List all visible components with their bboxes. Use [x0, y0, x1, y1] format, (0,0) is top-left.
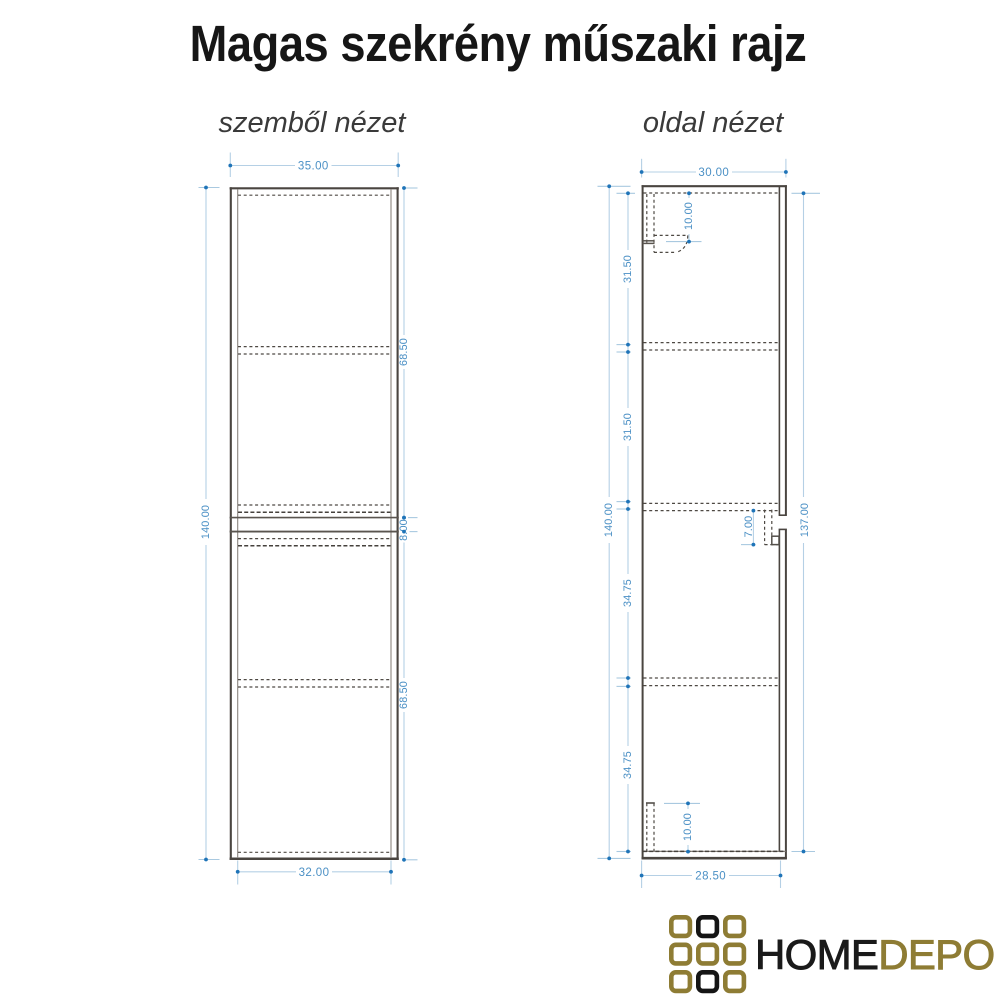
- svg-text:137.00: 137.00: [799, 503, 811, 537]
- svg-text:34.75: 34.75: [622, 751, 634, 779]
- svg-text:10.00: 10.00: [682, 813, 694, 841]
- svg-text:31.50: 31.50: [622, 413, 634, 441]
- svg-text:HOMEDEPO: HOMEDEPO: [755, 931, 994, 978]
- svg-text:32.00: 32.00: [299, 867, 330, 879]
- svg-text:68.50: 68.50: [398, 338, 410, 366]
- svg-text:10.00: 10.00: [683, 202, 695, 230]
- svg-text:31.50: 31.50: [622, 255, 634, 283]
- svg-text:35.00: 35.00: [298, 161, 329, 173]
- svg-text:28.50: 28.50: [695, 871, 726, 883]
- svg-text:68.50: 68.50: [398, 681, 410, 709]
- svg-text:30.00: 30.00: [698, 167, 729, 179]
- svg-text:34.75: 34.75: [622, 579, 634, 607]
- svg-text:140.00: 140.00: [200, 505, 212, 539]
- svg-text:7.00: 7.00: [743, 516, 755, 538]
- svg-text:140.00: 140.00: [603, 503, 615, 537]
